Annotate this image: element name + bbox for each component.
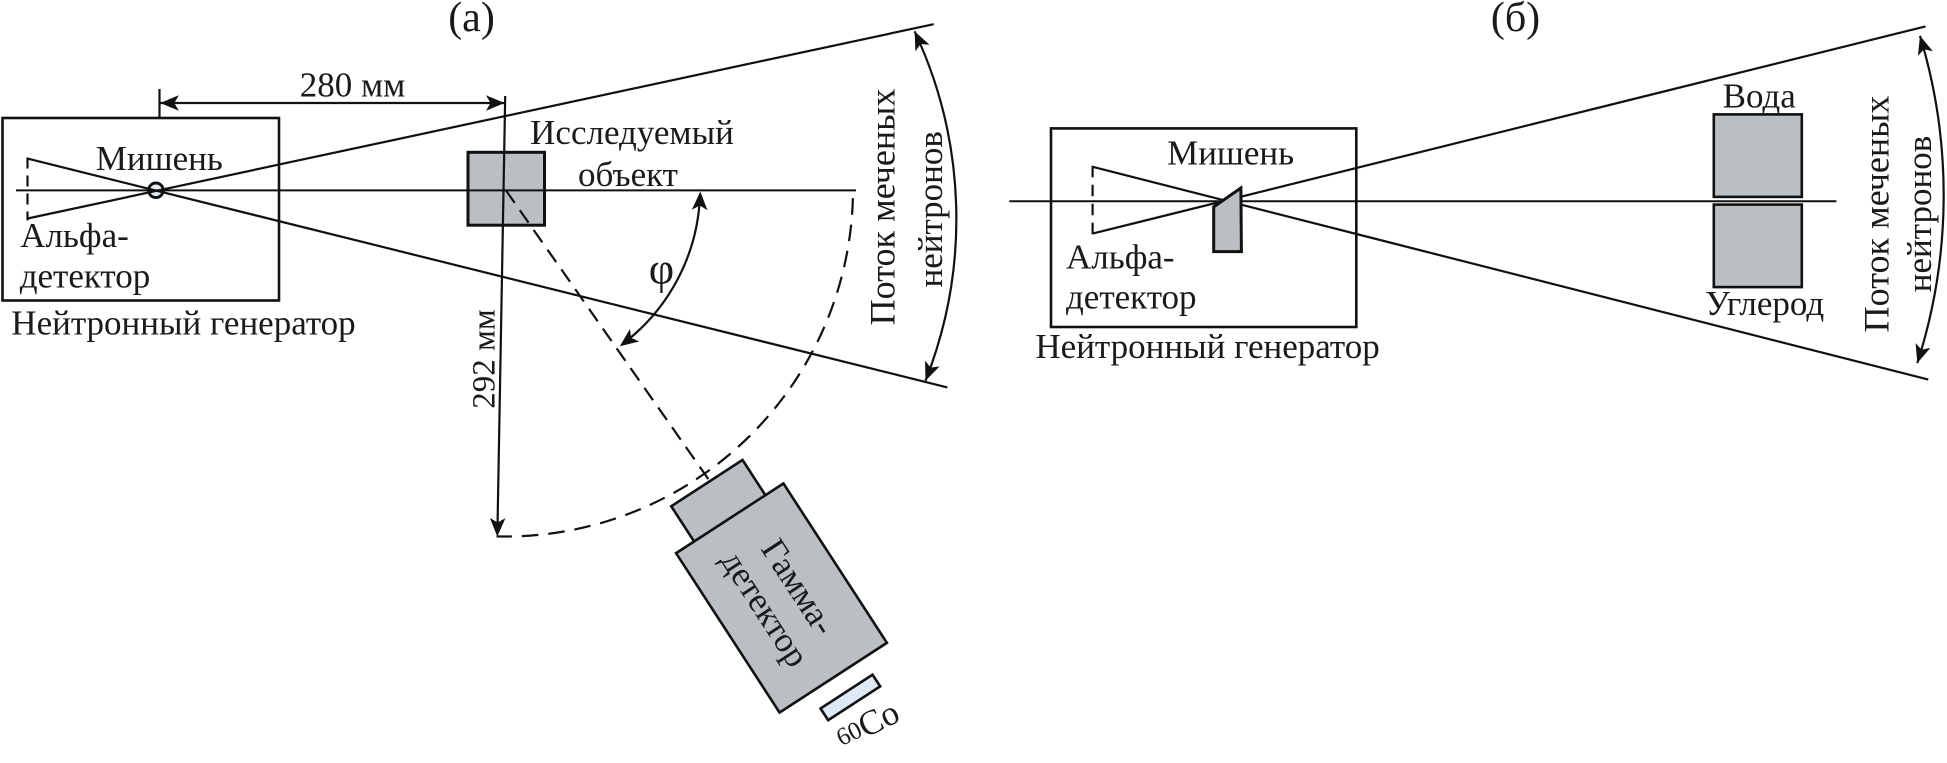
svg-text:нейтронов: нейтронов [911,131,950,287]
svg-text:φ: φ [649,245,674,294]
svg-text:292 мм: 292 мм [467,309,503,409]
svg-text:Мишень: Мишень [1167,134,1294,173]
svg-text:Углерод: Углерод [1705,284,1824,323]
svg-text:детектор: детектор [20,256,151,295]
svg-text:Альфа-: Альфа- [1066,238,1175,277]
svg-text:детектор: детектор [1066,278,1197,317]
svg-text:Вода: Вода [1723,76,1797,115]
svg-text:нейтронов: нейтронов [1900,136,1939,292]
svg-text:Нейтронный генератор: Нейтронный генератор [1035,327,1379,366]
svg-text:объект: объект [578,155,678,194]
svg-text:Мишень: Мишень [96,139,223,178]
svg-text:Поток меченых: Поток меченых [1856,96,1896,333]
svg-text:(а): (а) [448,0,495,41]
svg-text:280 мм: 280 мм [300,66,406,105]
svg-text:Нейтронный генератор: Нейтронный генератор [11,304,355,343]
svg-text:Альфа-: Альфа- [20,216,129,255]
svg-text:(б): (б) [1491,0,1540,41]
svg-text:Исследуемый: Исследуемый [530,113,734,152]
svg-text:Поток меченых: Поток меченых [863,89,903,326]
